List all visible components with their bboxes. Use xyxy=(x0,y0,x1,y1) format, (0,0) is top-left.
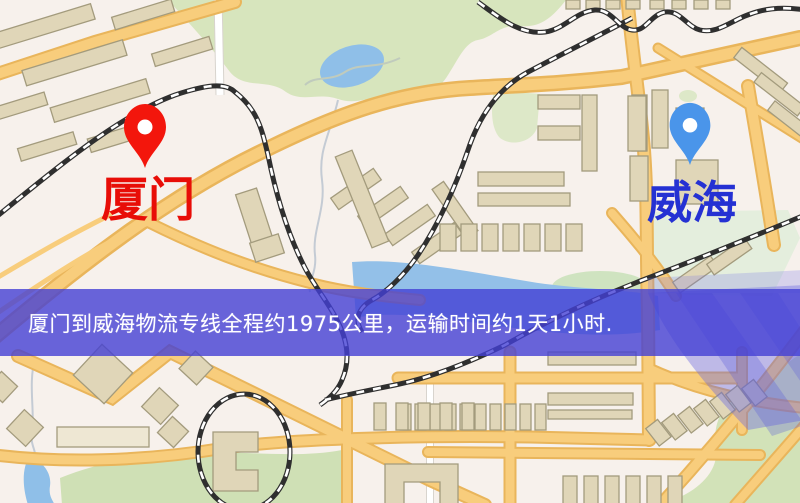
map: 厦门 威海 xyxy=(0,0,800,503)
pin-hole xyxy=(683,118,698,133)
map-screenshot: 厦门 威海 厦门到威海物流专线全程约1975公里，运输时间约1天1小时. xyxy=(0,0,800,503)
destination-city-label: 威海 xyxy=(647,176,737,229)
origin-city-label: 厦门 xyxy=(101,173,195,228)
pin-hole xyxy=(138,120,153,135)
route-info-text: 厦门到威海物流专线全程约1975公里，运输时间约1天1小时. xyxy=(28,308,613,338)
route-info-banner: 厦门到威海物流专线全程约1975公里，运输时间约1天1小时. xyxy=(0,289,800,356)
